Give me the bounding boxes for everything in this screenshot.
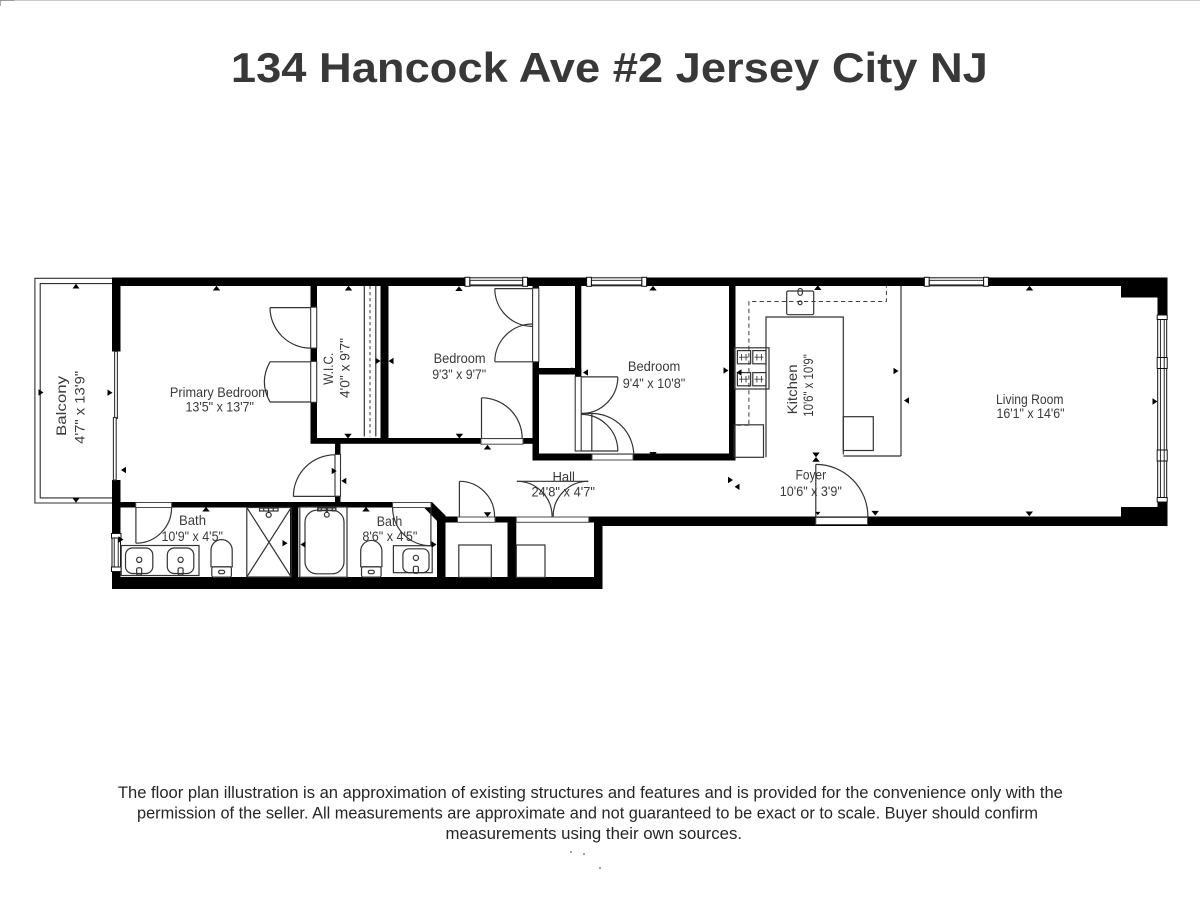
svg-text:16'1" x 14'6": 16'1" x 14'6"	[997, 405, 1065, 421]
svg-text:The floor plan illustration is: The floor plan illustration is an approx…	[118, 784, 1063, 802]
svg-text:Kitchen: Kitchen	[784, 364, 800, 414]
svg-text:permission of the seller. All: permission of the seller. All measuremen…	[137, 804, 1038, 822]
svg-text:9'4" x 10'8": 9'4" x 10'8"	[623, 375, 686, 391]
svg-text:Bath: Bath	[179, 512, 206, 528]
svg-text:10'6" x 3'9": 10'6" x 3'9"	[780, 483, 842, 499]
svg-text:Bath: Bath	[377, 513, 403, 529]
svg-text:measurements using their own s: measurements using their own sources.	[446, 825, 743, 843]
svg-text:Hall: Hall	[552, 469, 575, 485]
svg-text:Foyer: Foyer	[796, 467, 827, 483]
svg-text:Bedroom: Bedroom	[628, 358, 681, 374]
svg-text:10'9" x 4'5": 10'9" x 4'5"	[161, 528, 223, 544]
svg-text:4'0" x 9'7": 4'0" x 9'7"	[337, 338, 353, 398]
svg-text:13'5" x 13'7": 13'5" x 13'7"	[185, 399, 254, 415]
svg-text:10'6" x 10'9": 10'6" x 10'9"	[800, 354, 816, 417]
svg-text:4'7" x 13'9": 4'7" x 13'9"	[72, 371, 88, 444]
svg-text:W.I.C.: W.I.C.	[320, 353, 336, 385]
svg-text:24'8" x 4'7": 24'8" x 4'7"	[531, 484, 595, 500]
svg-text:Bedroom: Bedroom	[434, 350, 486, 366]
svg-text:9'3" x 9'7": 9'3" x 9'7"	[432, 366, 486, 382]
svg-text:Balcony: Balcony	[53, 376, 69, 436]
svg-text:134 Hancock Ave #2 Jersey City: 134 Hancock Ave #2 Jersey City NJ	[231, 44, 988, 91]
svg-text:8'6" x 4'5": 8'6" x 4'5"	[362, 528, 417, 544]
